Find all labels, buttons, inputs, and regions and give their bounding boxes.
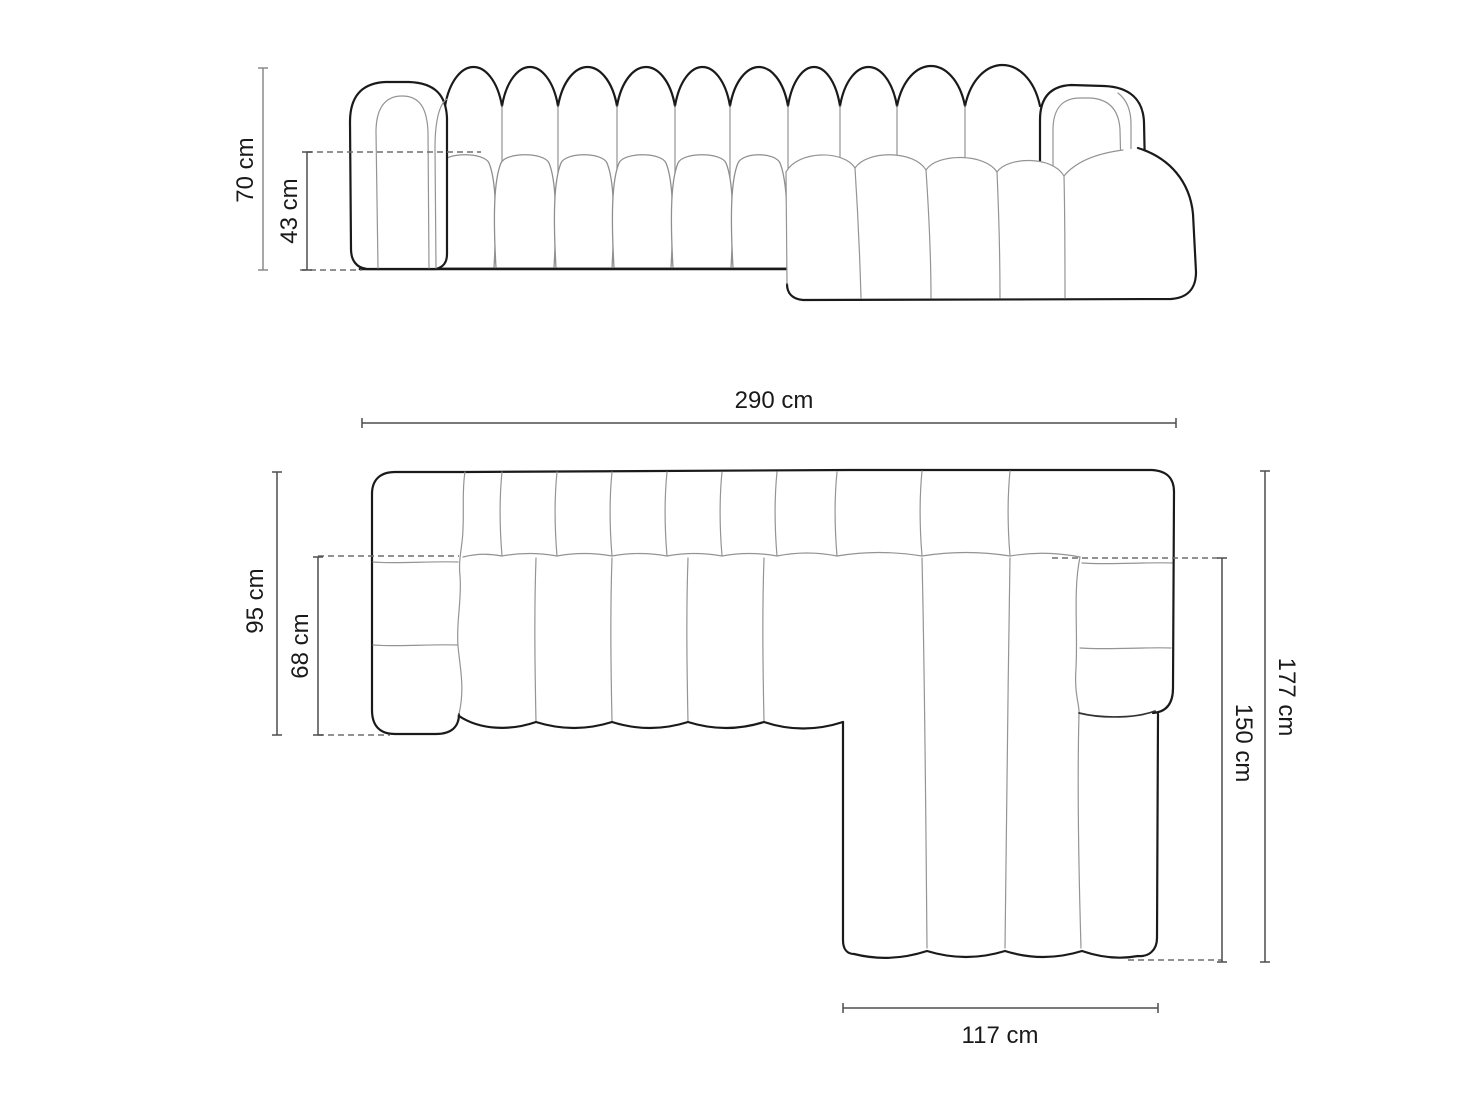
front-height-label: 70 cm xyxy=(231,120,261,220)
plan-left-armrest-inner-edge xyxy=(458,472,465,714)
front-left-armrest xyxy=(350,82,447,269)
plan-chaise-seams xyxy=(922,557,1081,948)
plan-chaise-depth-dimension-line xyxy=(1217,558,1227,962)
plan-dashed-lines xyxy=(318,556,1222,960)
plan-seat-depth-label: 68 cm xyxy=(286,596,316,696)
plan-seat-front-edge xyxy=(459,716,843,729)
plan-left-armrest xyxy=(372,472,465,734)
plan-chaise-depth-label: 150 cm xyxy=(1228,693,1258,793)
plan-overall-depth-dimension-line xyxy=(1260,471,1270,962)
plan-top-edge xyxy=(465,470,1174,713)
plan-chaise-width-dimension-line xyxy=(843,1003,1158,1013)
plan-chaise-outline xyxy=(843,714,1158,958)
plan-width-dimension-line xyxy=(362,418,1176,428)
sofa-dimension-diagram: 70 cm 43 cm 290 cm 95 cm 68 cm 177 cm 15… xyxy=(0,0,1483,1112)
front-backrest-arches xyxy=(445,65,1040,106)
plan-backrest-dividers xyxy=(500,471,1010,556)
sofa-top-plan xyxy=(272,418,1270,1013)
plan-side-depth-label: 95 cm xyxy=(241,551,271,651)
plan-left-armrest-divisions xyxy=(373,562,458,646)
plan-right-armrest-divisions xyxy=(1080,563,1172,649)
front-seat-cushions xyxy=(434,155,787,268)
plan-right-armrest-bottom xyxy=(1079,711,1155,717)
plan-overall-depth-label: 177 cm xyxy=(1271,647,1301,747)
plan-backrest-front-edge xyxy=(463,553,1080,558)
plan-width-label: 290 cm xyxy=(724,386,824,416)
plan-seat-seams xyxy=(535,558,764,722)
front-seat-height-label: 43 cm xyxy=(275,161,305,261)
plan-chaise-width-label: 117 cm xyxy=(950,1021,1050,1051)
plan-side-depth-dimension-line xyxy=(272,472,282,735)
sofa-diagram-drawing xyxy=(0,0,1483,1112)
sofa-front-elevation xyxy=(258,65,1196,300)
front-chaise-fill xyxy=(786,148,1196,300)
